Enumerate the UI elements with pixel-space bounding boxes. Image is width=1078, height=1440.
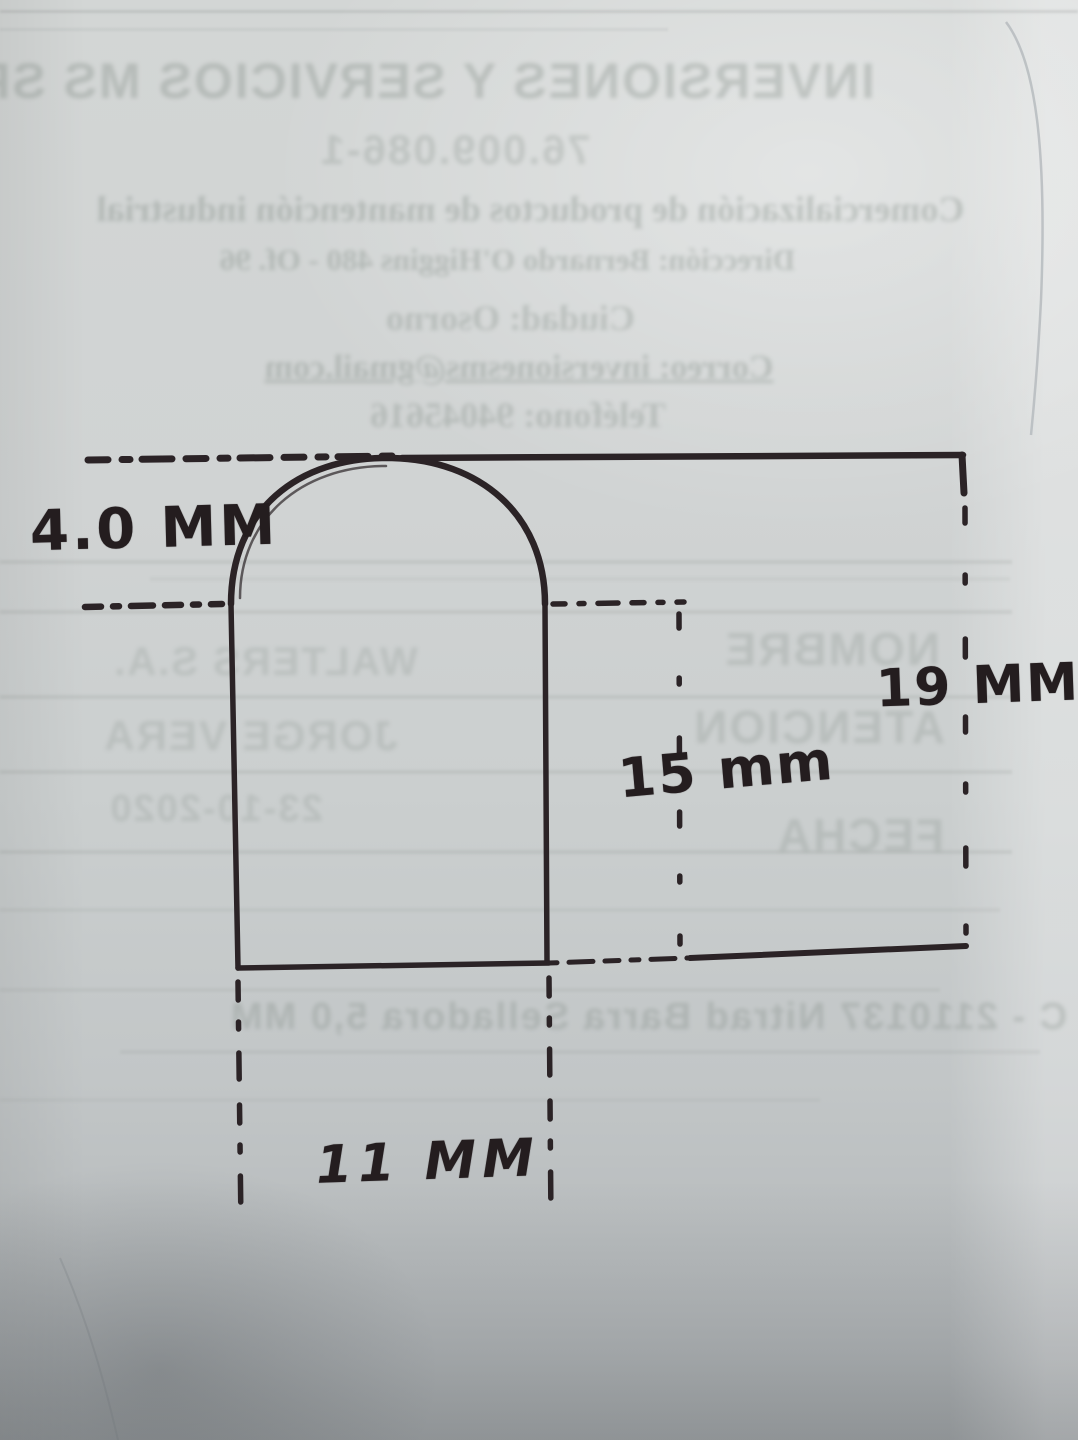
- dim-line-bottom-dashed-horizontal: [549, 958, 688, 963]
- shape-top-line: [402, 455, 963, 458]
- crease-top-right: [1006, 22, 1043, 435]
- shape-right-line: [545, 604, 547, 962]
- shape-bottom-line: [238, 963, 549, 968]
- dim-line-mid-dashed-horizontal: [553, 602, 684, 604]
- rect-bottom-line: [690, 946, 966, 958]
- dim-line-left-dashed: [85, 604, 222, 607]
- shape-left-line: [231, 604, 238, 968]
- corner-tick: [962, 455, 964, 493]
- dim-line-right-dashed-vertical: [965, 508, 966, 933]
- paper-photo: INVERSIONES Y SERVICIOS MS SPA 76.009.08…: [0, 0, 1078, 1440]
- dim-label-arch-height: 4.0 MM: [29, 493, 279, 564]
- dim-label-overall-height: 19 MM: [875, 652, 1078, 719]
